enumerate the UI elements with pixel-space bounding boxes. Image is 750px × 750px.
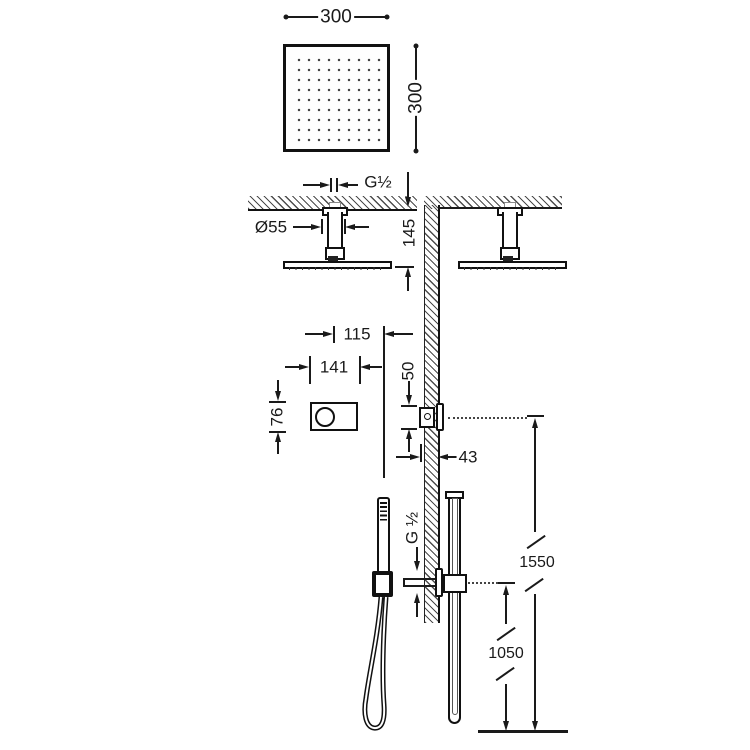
dim-dot <box>284 15 289 20</box>
dim-line <box>277 442 279 454</box>
dim-line <box>416 547 418 561</box>
arrowhead <box>323 331 333 337</box>
control-knob-side <box>424 413 431 420</box>
dim-label-offset: 115 <box>341 326 372 343</box>
dim-dot <box>414 149 419 154</box>
control-knob-front <box>315 407 335 427</box>
slide-rail-inner-line <box>452 498 458 715</box>
dim-line-1050 <box>505 595 507 624</box>
dim-line-1050 <box>505 684 507 721</box>
dim-label-head-drop: 145 <box>401 217 418 249</box>
dim-label-control-body: 50 <box>400 360 417 383</box>
dim-line <box>407 277 409 291</box>
dim-label-control-height: 76 <box>269 406 286 429</box>
dim-label-head-depth: 300 <box>407 80 426 116</box>
outlet-pipe-stub <box>404 585 436 587</box>
dim-label-1550: 1550 <box>517 555 557 571</box>
nozzle-ticks-right <box>464 267 557 270</box>
dim-tick <box>269 401 286 403</box>
overhead-shower-plan-view <box>283 44 390 152</box>
dim-tick <box>359 356 361 384</box>
arrowhead <box>406 429 412 439</box>
dim-label-recess-depth: 43 <box>457 449 480 466</box>
arrowhead <box>338 182 348 188</box>
dim-line <box>396 456 410 458</box>
arrowhead <box>405 267 411 277</box>
dim-tick <box>527 415 544 417</box>
dim-label-ceiling-thread: G½ <box>362 174 393 191</box>
dim-dot <box>414 44 419 49</box>
dim-line-1550 <box>534 594 536 721</box>
arrowhead <box>384 331 394 337</box>
arrowhead <box>275 432 281 442</box>
dim-line <box>416 603 418 617</box>
arrowhead <box>405 197 411 207</box>
dim-line <box>303 184 320 186</box>
rail-centerline <box>383 326 385 478</box>
wall-outlet-body-side <box>443 574 467 593</box>
arrowhead <box>320 182 330 188</box>
dim-line <box>285 366 299 368</box>
arrowhead <box>410 454 420 460</box>
dim-label-head-width: 300 <box>318 8 354 27</box>
shower-hose <box>340 590 410 740</box>
outlet-pipe-stub <box>404 578 436 580</box>
dim-tick <box>309 356 311 384</box>
dim-tick <box>333 326 335 343</box>
spray-nozzle-grid <box>291 52 382 144</box>
dim-label-rose-diameter: Ø55 <box>253 219 289 236</box>
wall-outlet-flange-side <box>435 568 443 597</box>
arrowhead <box>503 585 509 595</box>
arrowhead <box>360 364 370 370</box>
arrowhead <box>414 593 420 603</box>
control-trim-plate-side <box>436 403 444 431</box>
dim-line <box>370 366 382 368</box>
dim-line <box>408 439 410 452</box>
arrowhead <box>345 224 355 230</box>
arrowhead <box>406 395 412 405</box>
dim-label-1050: 1050 <box>486 646 526 662</box>
hand-shower-spray-face <box>380 502 387 522</box>
arrowhead <box>299 364 309 370</box>
dim-line <box>408 381 410 395</box>
shower-arm-left <box>327 212 343 248</box>
nozzle-ticks-left <box>289 267 382 270</box>
dim-line <box>394 333 413 335</box>
dim-line <box>355 226 369 228</box>
reference-dotted-line-control <box>448 417 527 419</box>
dim-label-control-width: 141 <box>318 359 350 376</box>
dim-tick <box>330 178 332 192</box>
arrowhead <box>532 418 538 428</box>
dim-line <box>277 380 279 391</box>
installation-drawing: 300 300 G½ Ø55 145 115 <box>0 0 750 750</box>
dim-line <box>293 226 311 228</box>
dim-break-mark <box>525 578 544 592</box>
floor-line <box>478 730 568 733</box>
shower-arm-right <box>502 212 518 248</box>
dim-label-outlet-thread: G ½ <box>404 510 421 546</box>
dim-line <box>305 333 323 335</box>
dim-break-mark <box>527 535 546 549</box>
dim-line <box>407 172 409 198</box>
dim-line <box>348 184 358 186</box>
dim-break-mark <box>496 667 515 681</box>
arrowhead <box>275 391 281 401</box>
dim-line-1550 <box>534 428 536 532</box>
dim-tick <box>420 444 422 462</box>
dim-break-mark <box>497 627 516 641</box>
arrowhead <box>414 561 420 571</box>
reference-dotted-line-outlet <box>468 582 498 584</box>
arrowhead <box>438 454 448 460</box>
arrowhead <box>311 224 321 230</box>
dim-dot <box>385 15 390 20</box>
dim-tick <box>498 582 515 584</box>
dim-tick <box>321 219 323 234</box>
dim-tick <box>401 405 417 407</box>
